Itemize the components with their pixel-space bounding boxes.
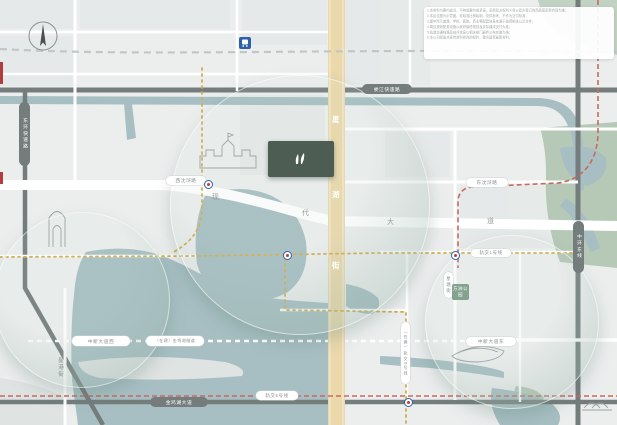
road-pill-zhongxin-avenue-east: 中新大道东	[466, 337, 516, 346]
modern-avenue-char1: 现	[212, 192, 219, 202]
road-pill-metro-line6: （在建）轨交6号线	[401, 322, 410, 384]
xinghu-street-char2: 湖	[332, 189, 340, 200]
metro-station-icon	[451, 251, 460, 260]
road-pill-xishenhu-road: 西沈浒路	[166, 176, 206, 185]
metro-station-icon	[204, 180, 213, 189]
road-pill-metro-line1: 轨交1号线	[471, 249, 511, 257]
compass-icon	[26, 19, 60, 53]
location-map: 1.本资料为要约邀请，不构成要约或承诺，买卖双方权利义务以双方签订的商品房买卖合…	[0, 0, 617, 425]
road-pill-jinjihu-tunnel: （在建）金鸡湖隧道	[146, 336, 204, 346]
disclaimer-box: 1.本资料为要约邀请，不构成要约或承诺，买卖双方权利义务以双方签订的商品房买卖合…	[424, 7, 614, 59]
metro-station-icon	[283, 251, 292, 260]
road-pill-zhonghuan-east: 中环东线	[573, 221, 584, 273]
xinghu-street-char3: 街	[332, 260, 340, 271]
disclaimer-line-3: 3.图中所示道路、学校、医院、商业等配套信息来源于政府相关公示文件；	[427, 20, 611, 24]
compass	[26, 18, 60, 58]
disclaimer-line-5: 5.轨道交通线路及站点信息以相关部门最终公布实施为准；	[427, 31, 611, 35]
edge-marker	[0, 172, 3, 184]
xinghu-street-band	[328, 0, 345, 425]
disclaimer-line-6: 6.本公司保留对宣传资料修改的权利，敬请留意最新资料。	[427, 36, 611, 40]
disclaimer-line-1: 1.本资料为要约邀请，不构成要约或承诺，买卖双方权利义务以双方签订的商品房买卖合…	[427, 9, 611, 13]
road-pill-fangzhou-park: 方洲公园	[452, 284, 469, 300]
edge-marker	[0, 62, 3, 84]
logo-mark-icon	[294, 152, 306, 166]
road-pill-metro-line5: 轨交5号线	[256, 391, 298, 400]
road-pill-dongshenhu-road: 东沈浒路	[466, 178, 508, 187]
road-pill-zhongxin-avenue-west: 中新大道西	[72, 336, 130, 346]
modern-avenue-char2: 代	[302, 208, 309, 218]
project-logo	[268, 141, 334, 177]
road-pill-xinggang-street: 星港街	[55, 351, 65, 383]
road-pill-jinjihu-avenue: 金鸡湖大道	[150, 397, 208, 407]
road-pill-loujiang-expressway: 娄江快速路	[362, 84, 412, 94]
xinghu-street-char1: 星	[332, 114, 340, 125]
train-station-icon	[239, 37, 251, 49]
road-pill-donghuan-expressway: 东环快速路	[19, 102, 30, 166]
metro-station-icon	[404, 398, 413, 407]
disclaimer-line-2: 2.本区位图为示意图，非精准比例绘制，仅供参考，不作为交付标准；	[427, 14, 611, 18]
modern-avenue-char4: 道	[487, 216, 494, 226]
modern-avenue-char3: 大	[387, 217, 394, 227]
disclaimer-line-4: 4.周边规划配套设施以政府最终规划及实际建成交付为准；	[427, 25, 611, 29]
